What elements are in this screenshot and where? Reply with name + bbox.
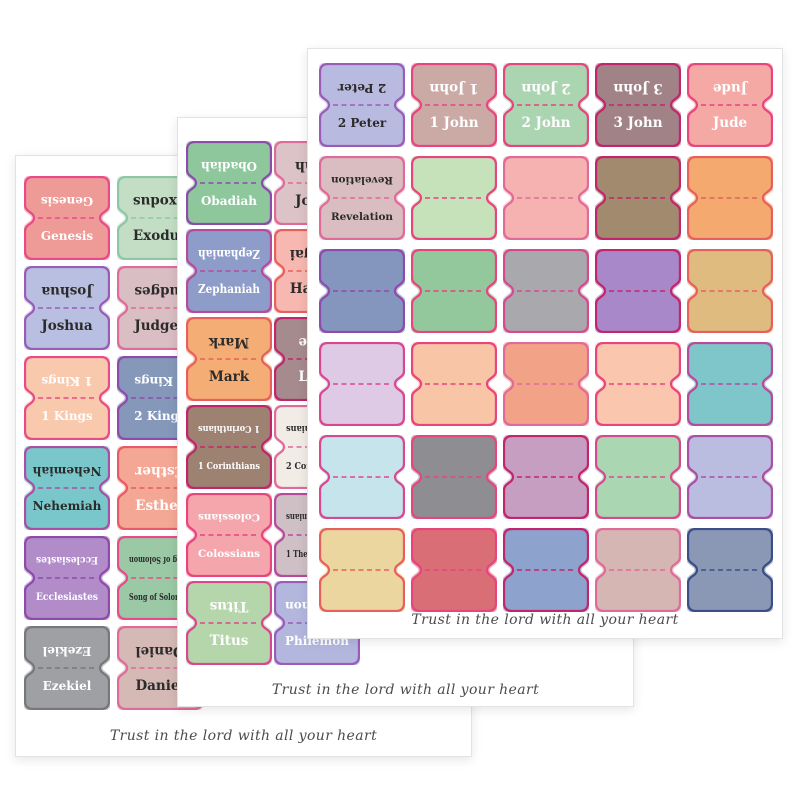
tab-shape: 3 John3 John	[595, 63, 681, 147]
bible-tab-blank	[503, 156, 589, 240]
bible-tab-blank	[687, 156, 773, 240]
tab-label-folded: Joshua	[41, 283, 94, 299]
tab-label-folded: Nehemiah	[32, 464, 101, 478]
tab-shape	[411, 528, 497, 612]
bible-tab-zephaniah: ZephaniahZephaniah	[186, 229, 272, 313]
tab-label-folded: 1 John	[429, 80, 478, 96]
bible-tab-blank	[595, 249, 681, 333]
tab-shape: TitusTitus	[186, 581, 272, 665]
tab-shape: RevelationRevelation	[319, 156, 405, 240]
bible-tab-nehemiah: NehemiahNehemiah	[24, 446, 110, 530]
bible-tab-joshua: JoshuaJoshua	[24, 266, 110, 350]
bible-tab-jude: JudeJude	[687, 63, 773, 147]
bible-tab-genesis: GenesisGenesis	[24, 176, 110, 260]
bible-tab-ecclesiastes: EcclesiastesEcclesiastes	[24, 536, 110, 620]
tab-shape: ColossiansColossians	[186, 493, 272, 577]
tab-shape	[503, 156, 589, 240]
tab-shape	[319, 249, 405, 333]
bible-tab-blank	[595, 528, 681, 612]
tab-shape	[411, 249, 497, 333]
bible-tab-blank	[687, 342, 773, 426]
tab-label: Jude	[712, 115, 747, 131]
tab-shape: 2 John2 John	[503, 63, 589, 147]
tab-label-folded: 1 Corinthians	[198, 423, 260, 433]
tab-label-folded: Titus	[209, 598, 248, 614]
tab-label: 2 John	[521, 115, 570, 131]
tab-label: 3 John	[613, 115, 662, 131]
bible-tab-1-kings: 1 Kings1 Kings	[24, 356, 110, 440]
bible-tab-mark: MarkMark	[186, 317, 272, 401]
bible-tab-blank	[319, 528, 405, 612]
bible-tab-blank	[411, 342, 497, 426]
tab-label: Revelation	[331, 211, 393, 223]
tab-label-folded: Obadiah	[201, 159, 257, 173]
bible-tab-1-john: 1 John1 John	[411, 63, 497, 147]
bible-tab-revelation: RevelationRevelation	[319, 156, 405, 240]
tab-label: 1 Corinthians	[198, 462, 260, 472]
bible-tab-blank	[503, 528, 589, 612]
tab-label-folded: Mark	[208, 334, 249, 350]
bible-tab-blank	[595, 342, 681, 426]
tab-label: 1 John	[429, 115, 478, 131]
sheet-quote: Trust in the lord with all your heart	[178, 682, 633, 698]
tab-shape	[503, 435, 589, 519]
tab-shape	[503, 528, 589, 612]
tab-shape: JoshuaJoshua	[24, 266, 110, 350]
tab-label-folded: Zephaniah	[198, 247, 260, 261]
tab-label-folded: 2 John	[521, 80, 570, 96]
sticker-sheet-front: 2 Peter2 Peter1 John1 John2 John2 John3 …	[307, 48, 783, 639]
tab-shape	[687, 156, 773, 240]
bible-tab-blank	[687, 528, 773, 612]
tab-label: Joshua	[40, 318, 93, 334]
tab-shape: GenesisGenesis	[24, 176, 110, 260]
bible-tab-blank	[595, 435, 681, 519]
tab-label-folded: 3 John	[613, 80, 662, 96]
tab-shape	[687, 528, 773, 612]
tab-label: Ezekiel	[43, 679, 92, 693]
bible-tab-blank	[687, 249, 773, 333]
tab-label-folded: 2 Peter	[337, 81, 386, 95]
tab-label: Zephaniah	[198, 282, 260, 296]
bible-tab-blank	[411, 528, 497, 612]
tab-shape: 1 Corinthians1 Corinthians	[186, 405, 272, 489]
tab-shape	[319, 342, 405, 426]
bible-tab-blank	[687, 435, 773, 519]
tab-shape	[503, 249, 589, 333]
bible-tab-blank	[319, 435, 405, 519]
tab-shape	[595, 249, 681, 333]
bible-tab-blank	[319, 249, 405, 333]
tab-label-folded: Genesis	[41, 194, 94, 208]
sheet-quote: Trust in the lord with all your heart	[308, 612, 782, 628]
tab-shape	[595, 342, 681, 426]
tab-label: 2 Peter	[338, 116, 387, 130]
tab-shape	[687, 435, 773, 519]
tab-label-folded: 1 Kings	[41, 374, 93, 388]
tab-shape: MarkMark	[186, 317, 272, 401]
tab-shape: ObadiahObadiah	[186, 141, 272, 225]
sheet-quote: Trust in the lord with all your heart	[16, 728, 471, 744]
bible-tab-titus: TitusTitus	[186, 581, 272, 665]
tab-shape	[687, 249, 773, 333]
tab-label-folded: Ezekiel	[42, 644, 91, 658]
tab-shape	[687, 342, 773, 426]
bible-tab-blank	[503, 435, 589, 519]
tab-shape	[595, 435, 681, 519]
tab-label: Nehemiah	[33, 499, 102, 513]
bible-tab-3-john: 3 John3 John	[595, 63, 681, 147]
bible-tab-blank	[595, 156, 681, 240]
tab-label: Genesis	[41, 229, 94, 243]
bible-tab-colossians: ColossiansColossians	[186, 493, 272, 577]
tab-shape	[411, 342, 497, 426]
bible-tab-blank	[319, 342, 405, 426]
tab-label: Mark	[209, 369, 250, 385]
tab-shape	[503, 342, 589, 426]
tab-shape	[595, 528, 681, 612]
tab-shape: 2 Peter2 Peter	[319, 63, 405, 147]
tab-shape	[411, 156, 497, 240]
bible-tab-2-peter: 2 Peter2 Peter	[319, 63, 405, 147]
tab-shape: 1 John1 John	[411, 63, 497, 147]
bible-tab-blank	[411, 435, 497, 519]
tab-shape	[319, 435, 405, 519]
tab-label-folded: Ecclesiastes	[36, 554, 98, 566]
tab-shape	[595, 156, 681, 240]
tab-label: Colossians	[198, 548, 260, 560]
bible-tab-ezekiel: EzekielEzekiel	[24, 626, 110, 710]
product-image: GenesisGenesisExodusExodusJoshuaJoshuaJu…	[0, 0, 800, 800]
tab-label: Titus	[210, 633, 249, 649]
bible-tab-blank	[411, 156, 497, 240]
tab-shape: EcclesiastesEcclesiastes	[24, 536, 110, 620]
tab-shape	[319, 528, 405, 612]
tab-shape: JudeJude	[687, 63, 773, 147]
tab-shape: 1 Kings1 Kings	[24, 356, 110, 440]
tab-shape: EzekielEzekiel	[24, 626, 110, 710]
bible-tab-blank	[503, 249, 589, 333]
tab-label: Ecclesiastes	[36, 591, 98, 603]
tab-label-folded: Revelation	[331, 174, 393, 186]
tab-shape	[411, 435, 497, 519]
bible-tab-obadiah: ObadiahObadiah	[186, 141, 272, 225]
tab-shape: NehemiahNehemiah	[24, 446, 110, 530]
tab-label-folded: Jude	[713, 80, 748, 96]
tab-label-folded: Colossians	[198, 511, 260, 523]
tab-shape: ZephaniahZephaniah	[186, 229, 272, 313]
tab-label: 1 Kings	[41, 409, 93, 423]
tab-label: Obadiah	[201, 194, 257, 208]
bible-tab-2-john: 2 John2 John	[503, 63, 589, 147]
bible-tab-blank	[411, 249, 497, 333]
bible-tab-blank	[503, 342, 589, 426]
bible-tab-1-corinthians: 1 Corinthians1 Corinthians	[186, 405, 272, 489]
